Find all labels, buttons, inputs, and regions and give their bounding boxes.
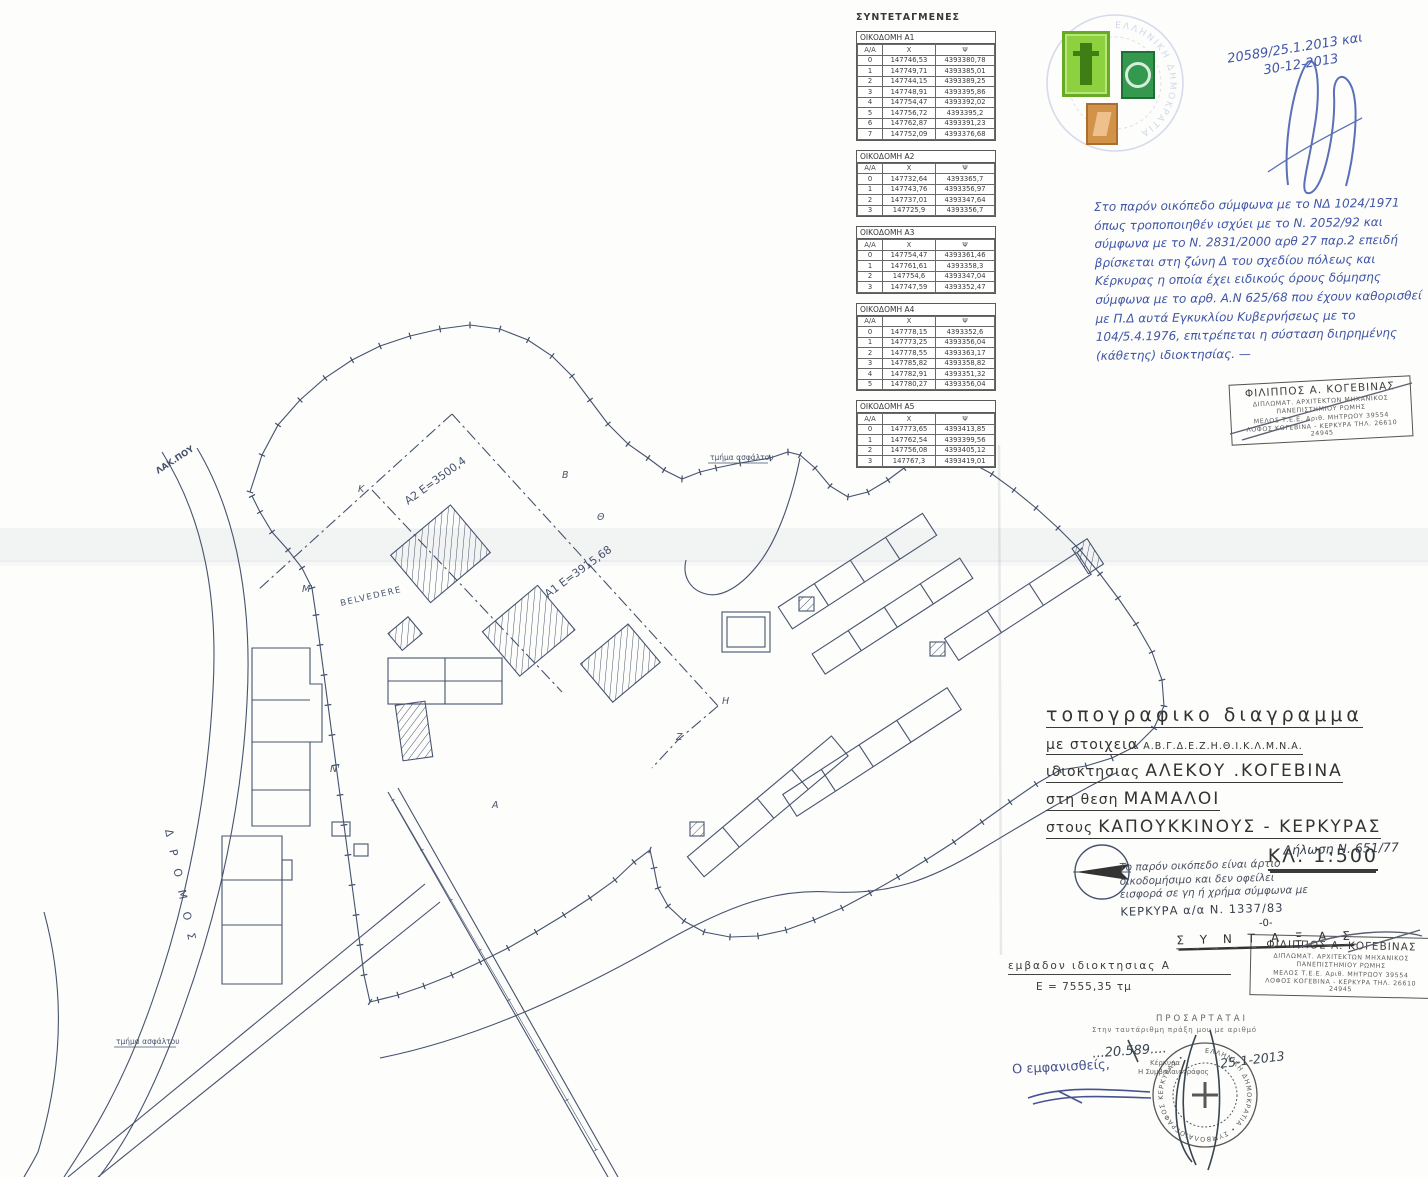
coordinates-panel: ΣΥΝΤΕΤΑΓΜΕΝΕΣ ΟΙΚΟΔΟΜΗ Α1Α/ΑΧΨ0147746,53… — [856, 12, 996, 477]
legal-note-line: (κάθετης) ιδιοκτησίας. — — [1096, 343, 1374, 365]
municipality-prefix: στους — [1046, 820, 1093, 836]
road-label-top: ΛΑΚ.ΠΟΥ — [154, 444, 197, 477]
vertex-K: Κ — [358, 484, 365, 495]
property-boundary — [250, 325, 1164, 1002]
vertex-A: Α — [491, 800, 499, 811]
location-prefix: στη θεση — [1046, 792, 1119, 808]
parcel-a2-label: Α2 Ε=3500,4 — [402, 454, 468, 507]
vertex-Z: Ζ — [675, 732, 683, 743]
coords-table: ΟΙΚΟΔΟΜΗ Α1Α/ΑΧΨ0147746,534393380,781147… — [856, 31, 996, 141]
south-road-outer — [380, 772, 1118, 1058]
southwest-road — [68, 884, 440, 1177]
title-elements-prefix: με στοιχεια — [1046, 737, 1138, 753]
municipality-name: ΚΑΠΟΥΚΚΙΝΟΥΣ - ΚΕΡΚΥΡΑΣ — [1098, 817, 1381, 837]
scanned-topographic-sheet: Α2 Ε=3500,4 Α1 Ε=3915,68 BELVEDERE τμήμα… — [0, 0, 1428, 1177]
paper-crease — [999, 445, 1001, 955]
architect-stamp: ΦΙΛΙΠΠΟΣ Α. ΚΟΓΕΒΙΝΑΣ ΔΙΠΛΩΜΑΤ. ΑΡΧΙΤΕΚΤ… — [1229, 375, 1414, 445]
driveway — [388, 788, 618, 1177]
vertex-B: Β — [562, 470, 569, 481]
coords-table: ΟΙΚΟΔΟΜΗ Α2Α/ΑΧΨ0147732,644393365,711477… — [856, 150, 996, 218]
boundary-letters: Α.Β.Γ.Δ.Ε.Ζ.Η.Θ.Ι.Κ.Λ.Μ.Ν.Α. — [1143, 741, 1303, 752]
coords-table: ΟΙΚΟΔΟΜΗ Α3Α/ΑΧΨ0147754,474393361,461147… — [856, 226, 996, 294]
road-label: ΔΡΟΜΟΣ — [162, 828, 201, 954]
east-building-bars — [687, 513, 1104, 876]
site-plan-drawing: Α2 Ε=3500,4 Α1 Ε=3915,68 BELVEDERE τμήμα… — [0, 0, 1428, 1177]
area-label: εμβαδον ιδιοκτησιας Α — [1008, 960, 1231, 975]
asphalt-label-top: τμήμα ασφάλτου — [710, 453, 774, 462]
owner-prefix: ιδιοκτησιας — [1046, 764, 1140, 780]
cross-emblem-icon — [1192, 1082, 1218, 1108]
division-lines — [258, 414, 718, 768]
asphalt-label-bottom: τμήμα ασφάλτου — [116, 1037, 180, 1046]
area-value: Ε = 7555,35 τμ — [1036, 981, 1231, 993]
outline-building-center — [388, 658, 502, 704]
owner-name: ΑΛΕΚΟΥ .ΚΟΓΕΒΙΝΑ — [1145, 761, 1342, 781]
location-name: ΜΑΜΑΛΟΙ — [1124, 789, 1221, 809]
scan-band-2 — [0, 560, 1428, 566]
revenue-stamp-large-green — [1062, 31, 1110, 97]
coords-tables: ΟΙΚΟΔΟΜΗ Α1Α/ΑΧΨ0147746,534393380,781147… — [856, 31, 996, 468]
notary-round-stamp: ΕΛΛΗΝΙΚΗ ΔΗΜΟΚΡΑΤΙΑ • ΣΥΜΒΟΛΑΙΟΓΡΑΦΟΣ ΚΕ… — [1140, 1030, 1270, 1160]
scan-band — [0, 528, 1428, 562]
coords-table: ΟΙΚΟΔΟΜΗ Α5Α/ΑΧΨ0147773,654393413,851147… — [856, 400, 996, 468]
vertex-H: Η — [722, 696, 729, 707]
column-icon — [1080, 43, 1092, 85]
drawing-title: τοπογραφικο διαγραμμα — [1046, 704, 1363, 728]
vertex-Th: Θ — [597, 512, 605, 523]
area-block: εμβαδον ιδιοκτησιας Α Ε = 7555,35 τμ — [1008, 960, 1231, 993]
attachment-heading: ΠΡΟΣΑΡΤΑΤΑΙ — [1156, 1014, 1392, 1024]
revenue-stamp-orange — [1086, 103, 1118, 145]
legal-note-line: 104/5.4.1976, επιτρέπεται η σύσταση διηρ… — [1096, 324, 1374, 346]
declaration-block: Δήλωση Ν. 651/77 Το παρόν οικόπεδο είναι… — [1119, 839, 1412, 950]
vertex-N: Ν' — [330, 764, 340, 775]
belvedere-label: BELVEDERE — [339, 585, 403, 609]
vertex-M: Μ' — [302, 584, 313, 595]
revenue-stamp-small-green — [1121, 51, 1155, 99]
coordinates-title: ΣΥΝΤΕΤΑΓΜΕΝΕΣ — [856, 12, 996, 23]
ring-icon — [1125, 62, 1151, 88]
legal-handwritten-note: Στο παρόν οικόπεδο σύμφωνα με το ΝΔ 1024… — [1094, 194, 1374, 365]
west-buildings — [222, 648, 368, 984]
coords-table: ΟΙΚΟΔΟΜΗ Α4Α/ΑΧΨ0147778,154393352,611477… — [856, 303, 996, 392]
gully-line — [685, 458, 800, 595]
architect-address: ΛΟΦΟΣ ΚΟΓΕΒΙΝΑ - ΚΕΡΚΥΡΑ ΤΗΛ. 26610 2494… — [1252, 977, 1428, 995]
figure-icon — [1092, 112, 1111, 136]
